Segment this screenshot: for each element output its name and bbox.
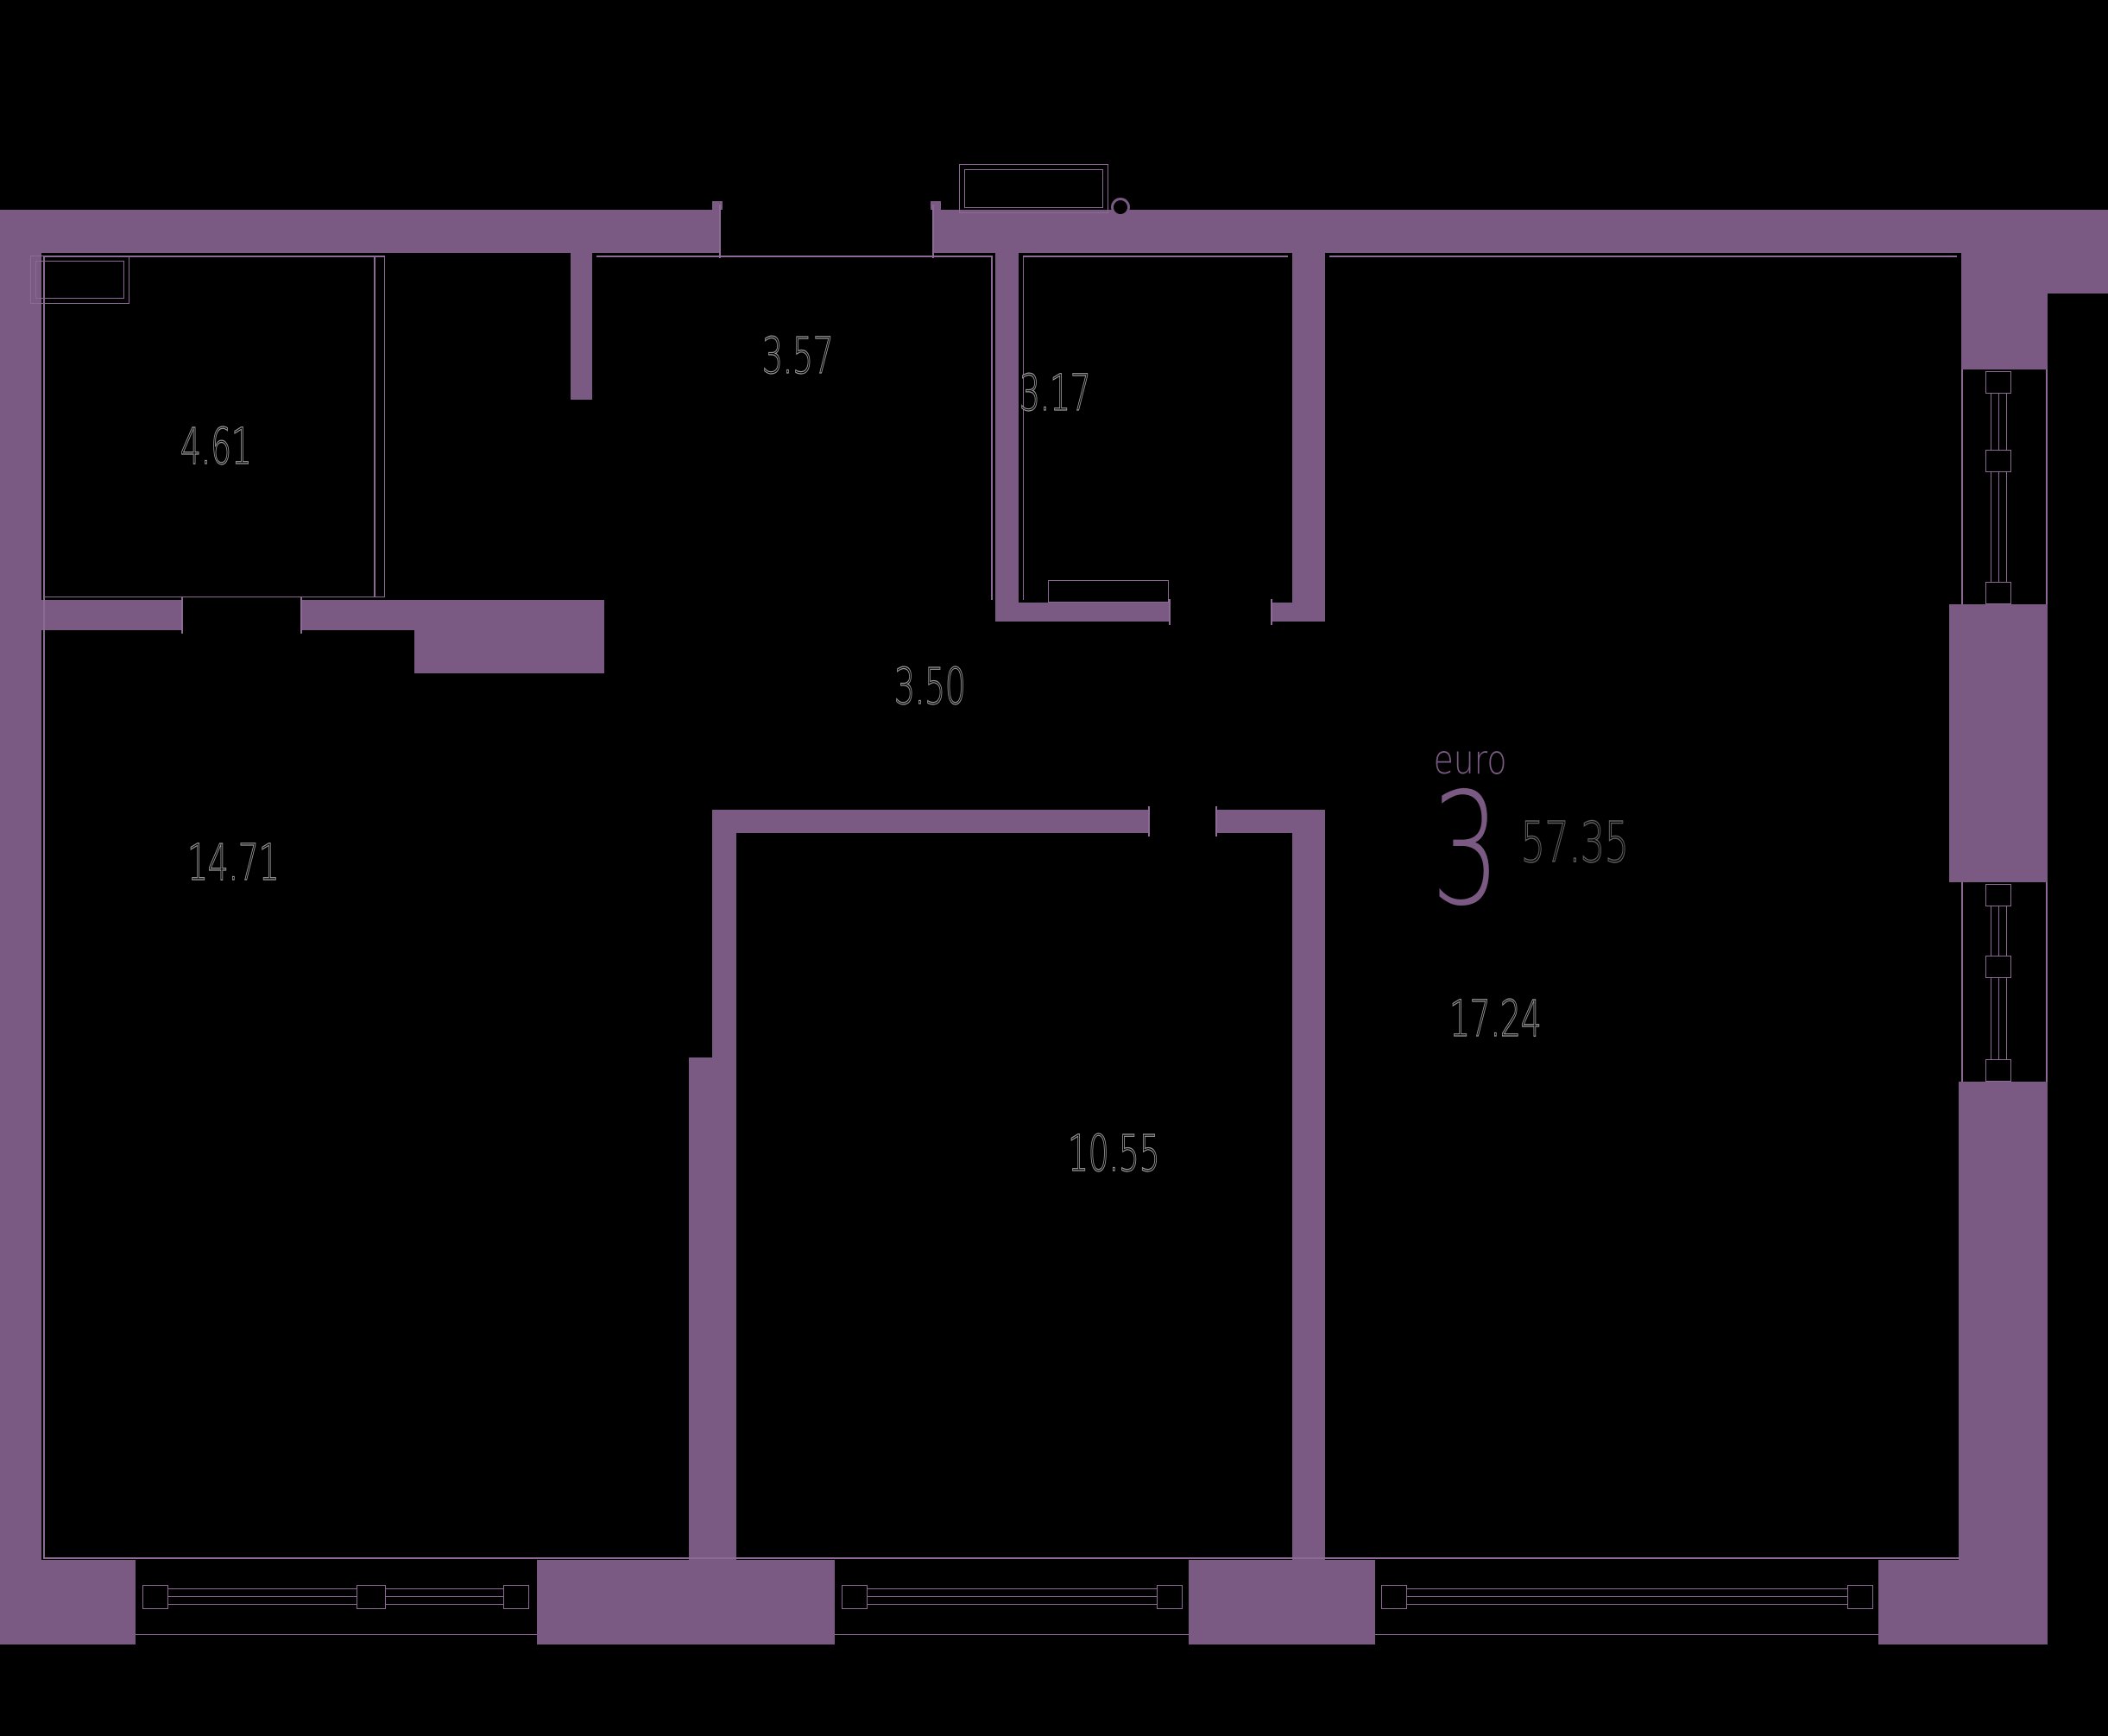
wall-hall-bedroom-left bbox=[736, 810, 1148, 833]
window-frame-box bbox=[842, 1585, 868, 1609]
bathroom-right-wall bbox=[1292, 253, 1325, 622]
plan-line bbox=[1375, 1634, 1878, 1635]
window-frame-box bbox=[1985, 884, 2011, 906]
plan-line bbox=[868, 1588, 1157, 1589]
wall-living-bedroom-lower bbox=[689, 1057, 736, 1560]
room-label-living-room: 14.71 bbox=[187, 833, 279, 892]
plan-line bbox=[1023, 256, 1288, 257]
plan-line bbox=[1998, 394, 1999, 450]
floor-plan: 4.61 3.57 3.17 3.50 14.71 10.55 17.24 eu… bbox=[0, 0, 2108, 1736]
window-frame-box bbox=[1985, 1059, 2011, 1082]
top-wall-left bbox=[0, 210, 719, 253]
room-label-bedroom: 10.55 bbox=[1068, 1124, 1159, 1183]
plan-line bbox=[384, 256, 385, 597]
plan-line bbox=[1271, 599, 1272, 625]
plan-line bbox=[2006, 472, 2007, 582]
plan-line bbox=[168, 1596, 357, 1597]
plan-line bbox=[1991, 978, 1991, 1059]
plan-line bbox=[386, 1596, 503, 1597]
plan-line bbox=[1991, 394, 1991, 450]
plan-line bbox=[2006, 394, 2007, 450]
window-frame-box bbox=[1157, 1585, 1183, 1609]
plan-line bbox=[43, 256, 45, 1557]
plan-line bbox=[1991, 906, 1991, 956]
plan-line bbox=[1961, 882, 1963, 1082]
plan-line bbox=[1991, 472, 1991, 582]
bathroom-left-wall bbox=[995, 253, 1019, 622]
balcony-bottom-wall-right bbox=[302, 600, 414, 630]
wall-living-hall-upper bbox=[712, 810, 736, 1057]
plan-line bbox=[386, 1588, 503, 1589]
room-label-entry-hall: 3.57 bbox=[762, 326, 834, 385]
room-label-balcony: 4.61 bbox=[180, 417, 252, 476]
plan-line bbox=[181, 597, 183, 634]
plan-line bbox=[868, 1596, 1157, 1597]
plan-line bbox=[300, 597, 302, 634]
wall-balcony-hall bbox=[571, 250, 592, 400]
plan-line bbox=[1998, 472, 1999, 582]
plan-line bbox=[719, 205, 721, 258]
plan-line bbox=[991, 256, 993, 600]
bottom-middle-pier bbox=[537, 1560, 835, 1644]
window-frame-box bbox=[1847, 1585, 1873, 1609]
room-label-bathroom: 3.17 bbox=[1019, 363, 1091, 422]
door-hinge-circle bbox=[1111, 198, 1130, 217]
left-wall bbox=[0, 210, 41, 1560]
plan-line bbox=[43, 1557, 1960, 1559]
plan-line bbox=[168, 1588, 357, 1589]
plan-line bbox=[1407, 1588, 1847, 1589]
plan-line bbox=[1148, 806, 1150, 836]
bottom-left-pier bbox=[0, 1560, 136, 1644]
wall-bedroom-kitchen bbox=[1292, 810, 1325, 1560]
plan-line bbox=[386, 1604, 503, 1605]
window-frame-box bbox=[35, 261, 124, 299]
unit-total-area: 57.35 bbox=[1521, 811, 1629, 875]
plan-line bbox=[2006, 978, 2007, 1059]
plan-line bbox=[136, 1634, 537, 1635]
top-wall-right bbox=[934, 210, 1961, 253]
plan-line bbox=[1215, 806, 1217, 836]
window-frame-box bbox=[1048, 580, 1169, 603]
window-frame-box bbox=[1985, 450, 2011, 472]
window-frame-box bbox=[1985, 956, 2011, 978]
plan-line bbox=[43, 597, 384, 597]
unit-rooms-count: 3 bbox=[1431, 761, 1500, 941]
plan-line bbox=[168, 1604, 357, 1605]
room-label-hallway: 3.50 bbox=[894, 657, 966, 716]
top-right-corner-wall bbox=[1961, 210, 2108, 294]
window-frame-box bbox=[503, 1585, 529, 1609]
plan-line bbox=[1329, 256, 1957, 257]
plan-line bbox=[1961, 369, 1963, 604]
plan-line bbox=[1407, 1604, 1847, 1605]
window-frame-box bbox=[357, 1585, 386, 1609]
plan-line bbox=[1169, 599, 1171, 625]
plan-line bbox=[1407, 1596, 1847, 1597]
plan-line bbox=[1998, 978, 1999, 1059]
window-frame-box bbox=[142, 1585, 168, 1609]
plan-line bbox=[1023, 256, 1024, 600]
plan-line bbox=[2046, 882, 2048, 1082]
balcony-bottom-wall-left bbox=[35, 600, 181, 630]
plan-line bbox=[2006, 906, 2007, 956]
right-wall-lower bbox=[1959, 1082, 2048, 1560]
plan-line bbox=[932, 205, 934, 258]
bathroom-bottom-wall-left bbox=[1019, 603, 1169, 622]
bathroom-bottom-wall-right bbox=[1272, 603, 1325, 622]
bottom-right-pier bbox=[1878, 1560, 2048, 1644]
plan-line bbox=[374, 256, 376, 597]
corner-block-living bbox=[414, 600, 604, 673]
entrance-jamb-nub-left bbox=[712, 201, 723, 210]
plan-line bbox=[1998, 906, 1999, 956]
plan-line bbox=[835, 1634, 1189, 1635]
right-wall-middle bbox=[1949, 604, 2048, 882]
window-frame-box bbox=[1985, 371, 2011, 394]
plan-line bbox=[868, 1604, 1157, 1605]
window-frame-box bbox=[964, 169, 1103, 208]
window-frame-box bbox=[1381, 1585, 1407, 1609]
window-frame-box bbox=[1985, 582, 2011, 604]
bottom-pier-bedroom-kitchen bbox=[1189, 1560, 1375, 1644]
right-wall-upper bbox=[1961, 294, 2048, 369]
plan-line bbox=[2046, 369, 2048, 604]
room-label-kitchen-living: 17.24 bbox=[1449, 989, 1541, 1048]
